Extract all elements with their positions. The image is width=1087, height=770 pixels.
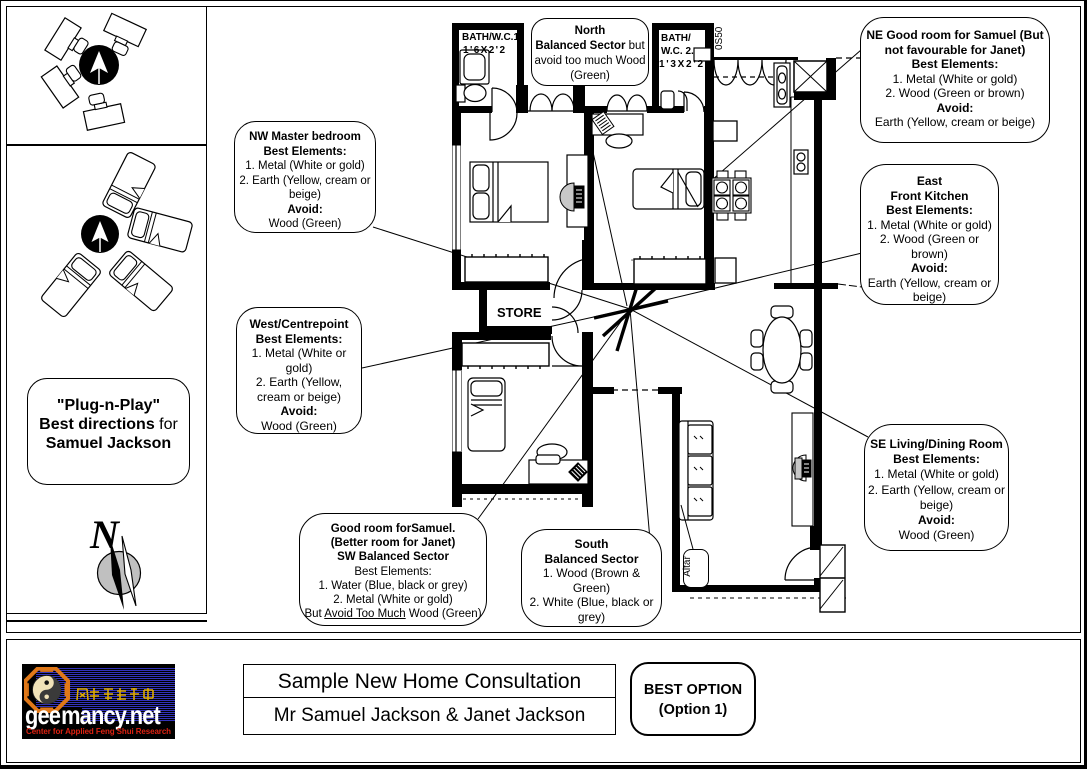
svg-text:0S50: 0S50 [714,26,725,50]
svg-text:1'6X2'2: 1'6X2'2 [463,45,505,56]
svg-text:N: N [89,512,121,557]
svg-text:BATH/: BATH/ [661,33,691,44]
svg-text:W.C. 2.: W.C. 2. [661,46,694,57]
svg-text:STORE: STORE [497,305,542,320]
svg-text:BATH/W.C.1: BATH/W.C.1 [462,32,519,43]
svg-text:1'3X2'2: 1'3X2'2 [659,59,703,70]
